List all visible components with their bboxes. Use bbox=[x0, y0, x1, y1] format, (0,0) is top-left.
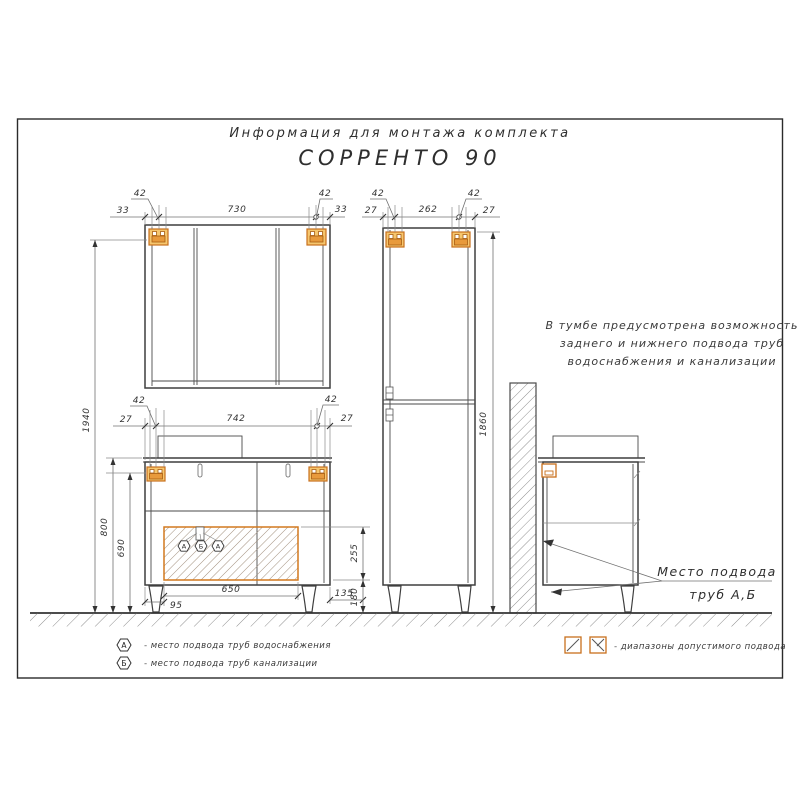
svg-text:А: А bbox=[216, 542, 221, 550]
badge-a1: А bbox=[178, 541, 190, 551]
note-line1: В тумбе предусмотрена возможность bbox=[546, 319, 799, 332]
dim-33-right: 33 bbox=[335, 205, 347, 215]
legend-item-b: Б - место подвода труб канализации bbox=[117, 657, 318, 669]
dim-42-left: 42 bbox=[372, 189, 384, 199]
dim-1940: 1940 bbox=[82, 408, 92, 433]
note-line2: заднего и нижнего подвода труб bbox=[560, 337, 784, 350]
dim-33-left: 33 bbox=[117, 206, 129, 216]
dim-42-left: 42 bbox=[133, 396, 145, 406]
dim-1860: 1860 bbox=[479, 412, 489, 437]
dim-42-right: 42 bbox=[325, 395, 337, 405]
dim-27-right: 27 bbox=[341, 414, 353, 424]
legend-item-a: А - место подвода труб водоснабжения bbox=[117, 639, 331, 651]
sheet-title: СОРРЕНТО 90 bbox=[298, 146, 501, 170]
svg-text:А: А bbox=[182, 542, 187, 550]
pointer-line1: Место подвода bbox=[657, 564, 777, 579]
dim-27-right: 27 bbox=[483, 206, 495, 216]
dim-42-right: 42 bbox=[319, 189, 331, 199]
drain-fitting bbox=[196, 527, 204, 540]
dim-262: 262 bbox=[419, 205, 438, 215]
badge-b: Б bbox=[195, 541, 207, 551]
dim-690: 690 bbox=[117, 539, 127, 558]
dim-730: 730 bbox=[228, 205, 247, 215]
mount-bracket bbox=[147, 467, 165, 481]
mount-bracket bbox=[149, 229, 168, 245]
legend-label-b: - место подвода труб канализации bbox=[144, 659, 318, 669]
legend-ranges-label: - диапазоны допустимого подвода bbox=[614, 642, 786, 652]
legend-symbol-a: А bbox=[121, 641, 127, 650]
technical-drawing: Информация для монтажа комплекта СОРРЕНТ… bbox=[0, 0, 800, 800]
svg-text:Б: Б bbox=[199, 542, 203, 550]
note-block: В тумбе предусмотрена возможность заднег… bbox=[546, 319, 799, 368]
dim-42-right: 42 bbox=[468, 189, 480, 199]
dim-800: 800 bbox=[100, 518, 110, 537]
dim-255: 255 bbox=[350, 544, 360, 563]
dim-742: 742 bbox=[227, 414, 246, 424]
ground bbox=[30, 613, 772, 627]
dim-42-left: 42 bbox=[134, 189, 146, 199]
badge-a2: А bbox=[212, 541, 224, 551]
mount-bracket bbox=[386, 232, 404, 247]
mount-bracket bbox=[307, 229, 326, 245]
mount-bracket bbox=[309, 467, 327, 481]
wall-section bbox=[510, 383, 536, 613]
sheet-subtitle: Информация для монтажа комплекта bbox=[229, 126, 570, 141]
dim-180: 180 bbox=[350, 588, 360, 607]
dim-650: 650 bbox=[222, 585, 241, 595]
note-line3: водоснабжения и канализации bbox=[568, 355, 777, 368]
dim-27-left: 27 bbox=[120, 415, 132, 425]
pointer-line2: труб А,Б bbox=[689, 587, 756, 602]
mount-bracket-side bbox=[542, 464, 556, 477]
dim-95: 95 bbox=[170, 601, 182, 611]
dim-27-left: 27 bbox=[365, 206, 377, 216]
plumbing-access-zone: А Б А bbox=[164, 527, 298, 580]
legend-label-a: - место подвода труб водоснабжения bbox=[144, 641, 331, 651]
legend-symbol-b: Б bbox=[121, 659, 126, 668]
mount-bracket bbox=[452, 232, 470, 247]
